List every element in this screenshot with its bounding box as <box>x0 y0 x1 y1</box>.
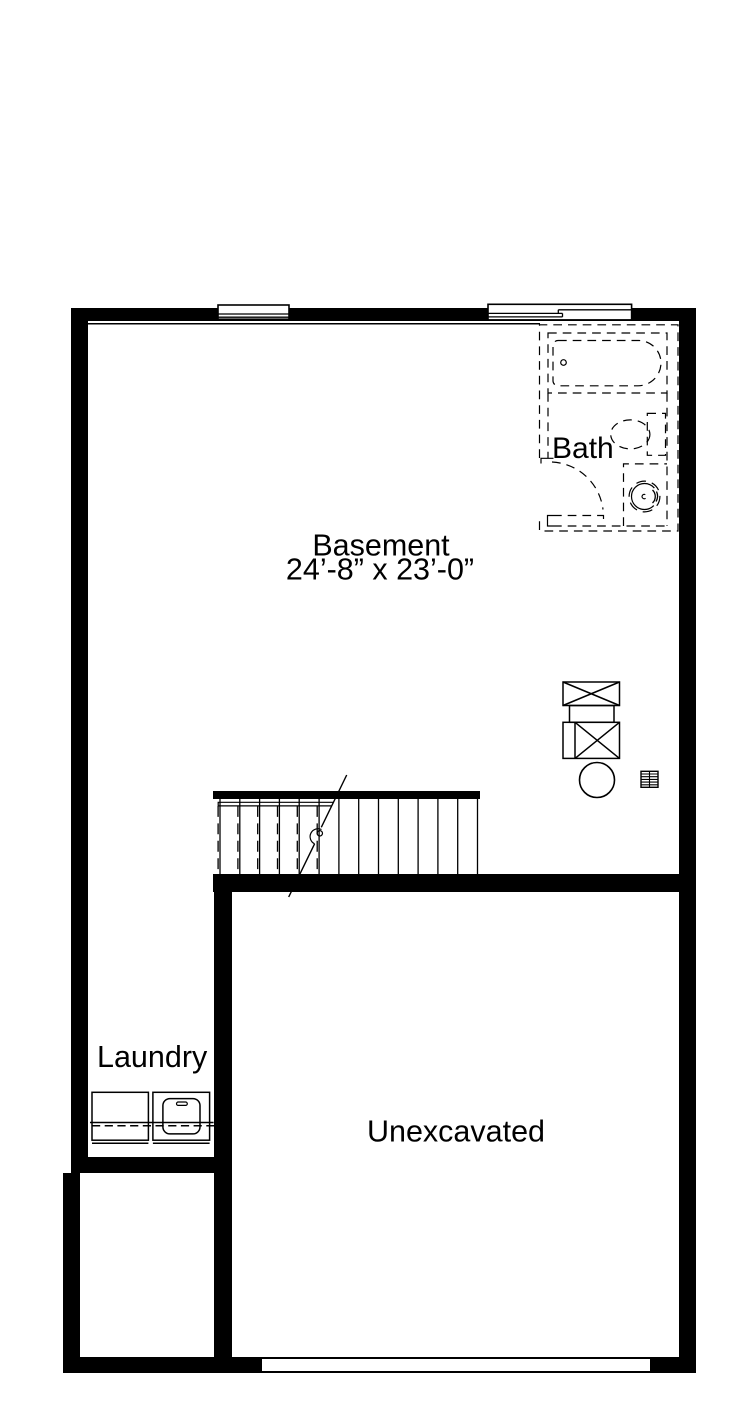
svg-text:Bath: Bath <box>552 432 614 465</box>
svg-text:Unexcavated: Unexcavated <box>367 1114 545 1148</box>
svg-text:Laundry: Laundry <box>97 1040 208 1074</box>
svg-text:24’-8” x 23’-0”: 24’-8” x 23’-0” <box>286 553 474 587</box>
